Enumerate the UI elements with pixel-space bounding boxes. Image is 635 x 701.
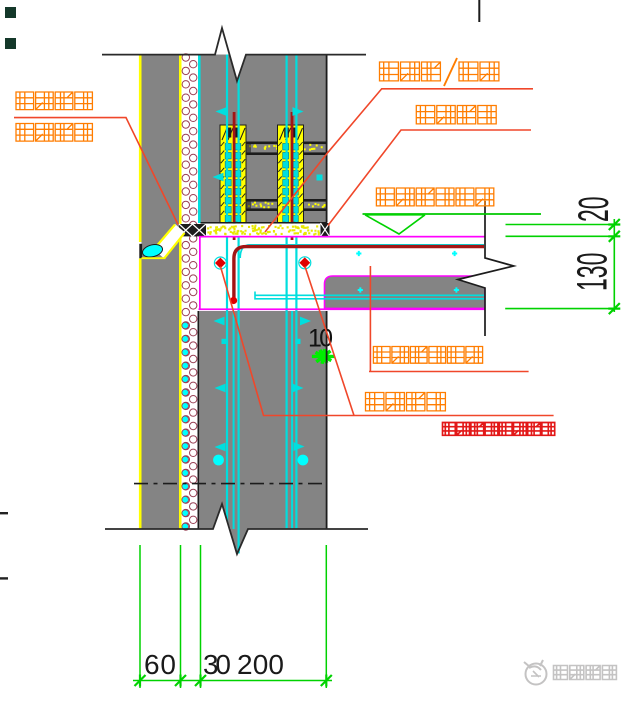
svg-text:60: 60 bbox=[144, 649, 176, 680]
svg-text:30: 30 bbox=[203, 649, 231, 680]
svg-text:20: 20 bbox=[571, 196, 618, 222]
svg-text:130: 130 bbox=[569, 253, 616, 291]
svg-text:200: 200 bbox=[237, 649, 284, 680]
